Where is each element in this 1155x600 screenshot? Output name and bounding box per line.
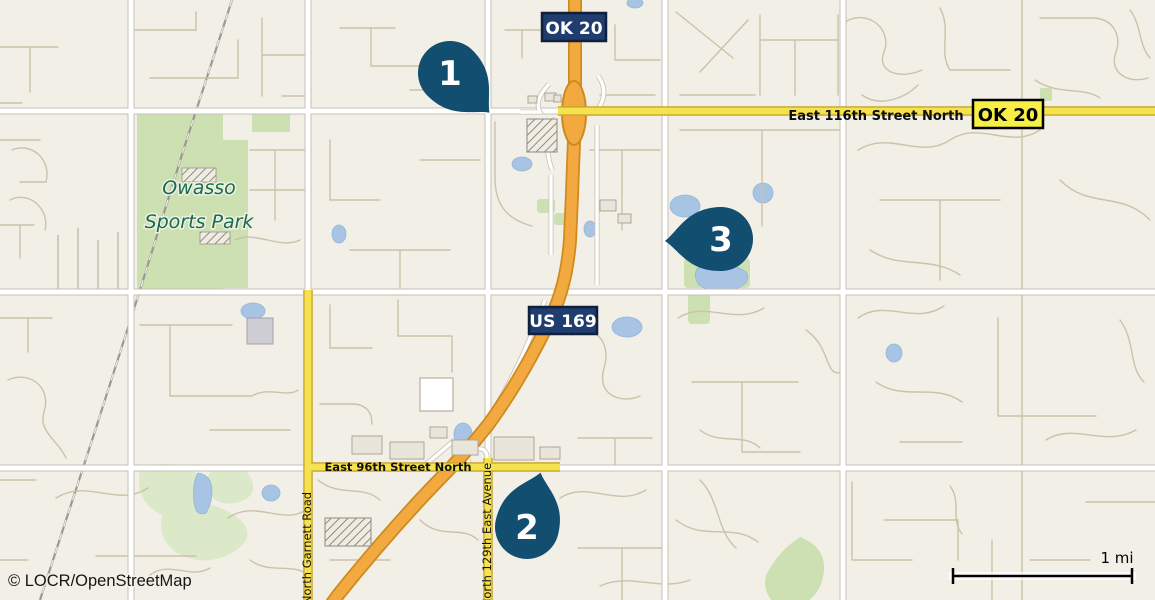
park-label-line2: Sports Park [145,211,255,233]
label-e96th: East 96th Street North [324,460,471,474]
label-garnett: North Garnett Road [300,492,314,600]
shield-ok20-right: OK 20 [973,100,1043,128]
map-attribution: © LOCR/OpenStreetMap [8,572,192,590]
map-svg: East 116th Street North East 96th Street… [0,0,1155,600]
label-e116th: East 116th Street North [788,109,963,124]
marker-3-number: 3 [709,220,733,260]
shield-us169: US 169 [529,307,597,334]
marker-1-number: 1 [438,54,462,94]
shield-ok20-top: OK 20 [542,13,606,41]
label-129th-ave: North 129th East Avenue [480,463,494,600]
scale-label: 1 mi [1100,549,1133,567]
map-canvas[interactable]: East 116th Street North East 96th Street… [0,0,1155,600]
marker-2-number: 2 [515,508,539,548]
shield-ok20-top-label: OK 20 [545,19,602,39]
park-label-line1: Owasso [162,177,236,199]
shield-ok20-right-label: OK 20 [978,105,1039,126]
shield-us169-label: US 169 [529,312,596,332]
